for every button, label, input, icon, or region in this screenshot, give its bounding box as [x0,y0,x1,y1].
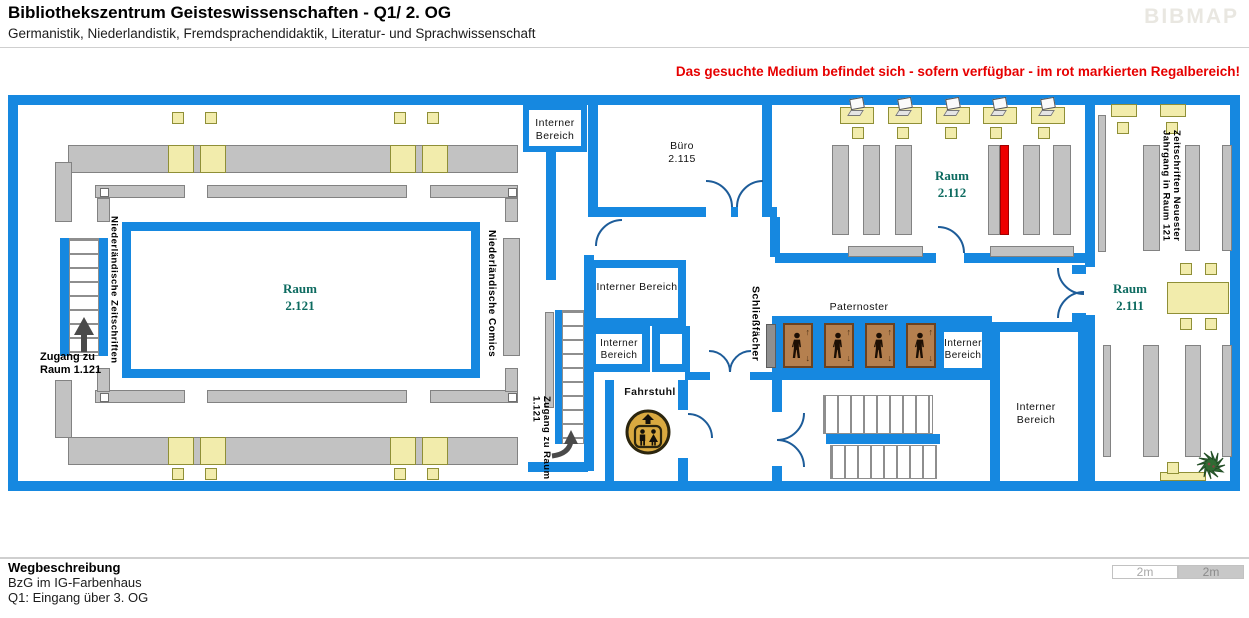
interner-right-large-label: Interner Bereich [1002,401,1070,426]
table [200,437,226,465]
page-title: Bibliothekszentrum Geisteswissenschaften… [8,3,451,23]
footer-line-1: BzG im IG-Farbenhaus [8,575,142,590]
wall [685,372,710,380]
chair [1038,127,1050,139]
chair [427,468,439,480]
table [422,145,448,173]
shelf-end-marker [100,393,109,402]
down-arrow-icon: ↓ [888,354,893,363]
table [1167,282,1229,314]
down-arrow-icon: ↓ [929,354,934,363]
room-label: Interner Bereich [529,117,581,142]
ndl-comics-label: Niederländische Comics [486,230,497,362]
wall [1072,313,1086,322]
paternoster-label: Paternoster [795,301,923,314]
shelf [1143,345,1159,457]
shelf [55,380,72,438]
up-arrow-icon: ↑ [929,328,934,337]
shelf [1143,145,1160,251]
shelf [505,198,518,222]
chair [1180,318,1192,330]
wall [1072,265,1086,274]
door-arc [596,220,622,246]
table [422,437,448,465]
chair [990,127,1002,139]
room-2121-label: Raum2.121 [255,281,345,315]
wall [555,310,562,444]
chair [205,468,217,480]
keyboard-icon [847,110,864,116]
chair [1180,263,1192,275]
wall [762,103,772,217]
bibmap-logo: BIBMAP [1144,5,1239,29]
schliessfaecher-label: Schließfächer [749,286,761,378]
scale-bar-right: 2m [1178,565,1244,579]
paternoster-cabin: ↑↓ [783,323,813,368]
shelf [895,145,912,235]
table [390,437,416,465]
wall [8,95,18,491]
availability-notice: Das gesuchte Medium befindet sich - sofe… [676,64,1240,79]
shelf [990,246,1074,257]
shelf [1222,145,1232,251]
table [168,145,194,173]
zeitschriften-neuester-label: Zeitschriften Neuester Jahrgang in Raum … [1160,130,1181,268]
monitor-icon [945,97,961,110]
fahrstuhl-label: Fahrstuhl [618,386,682,399]
wall [772,466,782,481]
down-arrow-icon: ↓ [806,354,811,363]
shelf [207,390,407,403]
room-interner-center-2: Interner Bereich [588,326,650,372]
wall [990,322,1088,332]
table [168,437,194,465]
keyboard-icon [943,110,960,116]
staircase [69,238,99,356]
person-icon [913,331,927,361]
shelf [68,437,518,465]
chair [1205,263,1217,275]
staircase [823,395,933,434]
chair [427,112,439,124]
shelf [1185,145,1200,251]
door-arc [777,440,804,467]
wall [770,217,780,257]
room-buero-label: Büro2.115 [650,140,714,165]
shelf-end-marker [508,393,517,402]
wall [731,207,738,217]
wall [99,238,108,356]
table [390,145,416,173]
door-arc [688,414,712,438]
up-arrow-icon: ↑ [806,328,811,337]
wall [1085,95,1095,267]
chair [172,468,184,480]
shelf [1103,345,1111,457]
shelf [1185,345,1201,457]
wall [678,458,688,481]
wall [826,434,940,444]
footer-line-2: Q1: Eingang über 3. OG [8,590,148,605]
person-icon [790,331,804,361]
down-arrow-icon: ↓ [847,354,852,363]
header-divider [0,47,1249,48]
shelf [207,185,407,198]
room-label: Interner Bereich [590,338,648,362]
shelf [545,312,554,408]
wall [588,103,598,217]
up-arrow-icon: ↑ [888,328,893,337]
chair [1117,122,1129,134]
door-arc [777,413,804,440]
up-arrow-icon: ↑ [847,328,852,337]
chair [852,127,864,139]
elevator-icon [624,408,672,456]
wall [588,207,706,217]
shelf [863,145,880,235]
shelf-end-marker [100,188,109,197]
door-arc [706,181,732,207]
shelf [988,145,1000,235]
keyboard-icon [990,110,1007,116]
table [1111,104,1137,117]
scale-bar-left: 2m [1112,565,1178,579]
wall [8,481,1240,491]
room-2111-label: Raum2.111 [1098,281,1162,315]
wall [772,380,782,412]
shelf [832,145,849,235]
staircase [830,445,937,479]
room-interner-center-1: Interner Bereich [588,260,686,326]
wall [60,238,69,356]
wall [1078,322,1088,481]
room-interner-top: Interner Bereich [523,104,587,152]
page-subtitle: Germanistik, Niederlandistik, Fremdsprac… [8,26,535,41]
person-icon [872,331,886,361]
room-label: Interner Bereich [596,281,678,294]
door-arc [938,227,964,253]
door-arc [730,351,751,372]
chair [897,127,909,139]
shelf [505,368,518,392]
keyboard-icon [895,110,912,116]
shelf-end-marker [508,188,517,197]
shelf [1053,145,1071,235]
shelf [55,162,72,222]
monitor-icon [1040,97,1056,110]
monitor-icon [897,97,913,110]
chair [172,112,184,124]
wall [546,150,556,280]
zugang-left-label: Zugang zu Raum 1.121 [40,351,120,376]
zugang-mid-label: Zugang zu Raum 1.121 [530,396,551,486]
room-2112-label: Raum2.112 [920,168,984,202]
paternoster-cabin: ↑↓ [824,323,854,368]
footer-heading: Wegbeschreibung [8,560,120,575]
paternoster-cabin: ↑↓ [865,323,895,368]
chair [1205,318,1217,330]
computer-icon [989,98,1011,116]
monitor-icon [992,97,1008,110]
shelf [68,145,518,173]
chair [394,468,406,480]
room-unlabeled [652,326,690,372]
person-icon [831,331,845,361]
computer-icon [1037,98,1059,116]
shelf [848,246,923,257]
staircase [562,310,584,444]
floor-plan: Bibliothekszentrum Geisteswissenschaften… [0,0,1249,618]
shelf [1222,345,1232,457]
computer-icon [846,98,868,116]
shelf [1098,115,1106,252]
computer-icon [894,98,916,116]
table [200,145,226,173]
shelf [1023,145,1040,235]
wall [605,380,614,481]
shelf [503,238,520,356]
room-interner-right-small: Interner Bereich [938,326,988,374]
chair [1167,462,1179,474]
highlighted-shelf [1000,145,1009,235]
door-arc [737,181,763,207]
locker-shelf [766,324,776,368]
shelf [430,185,518,198]
paternoster-cabin: ↑↓ [906,323,936,368]
footer-divider [0,557,1249,559]
chair [394,112,406,124]
door-arc [709,351,730,372]
keyboard-icon [1038,110,1055,116]
room-label: Interner Bereich [940,338,986,362]
computer-icon [942,98,964,116]
monitor-icon [849,97,865,110]
chair [205,112,217,124]
table [1160,104,1186,117]
wall [763,207,777,217]
chair [945,127,957,139]
